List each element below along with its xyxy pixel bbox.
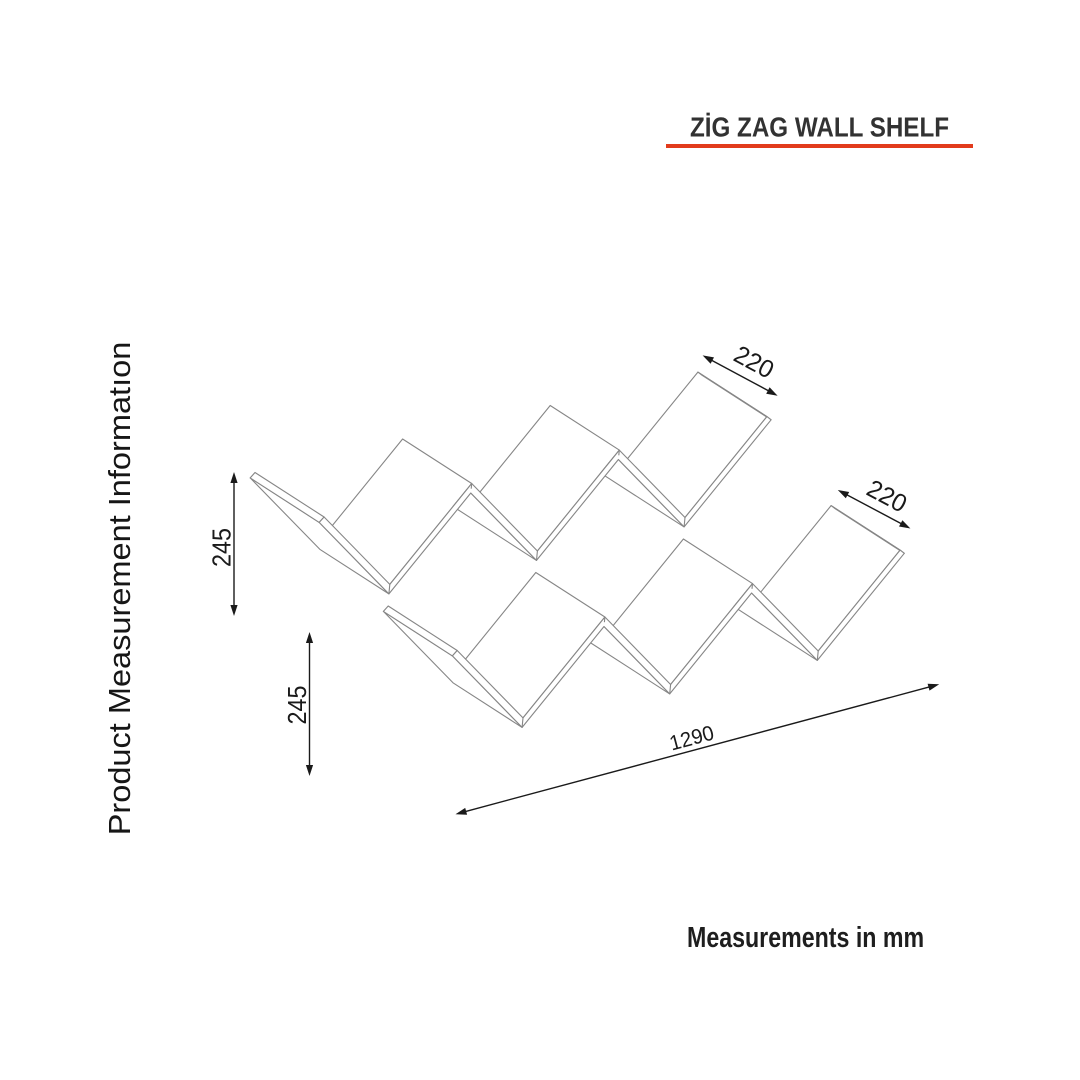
svg-text:245: 245 — [207, 528, 237, 567]
svg-text:Product Measurement Informatıo: Product Measurement Informatıon — [102, 342, 137, 836]
svg-text:220: 220 — [862, 474, 911, 518]
svg-text:1290: 1290 — [667, 722, 716, 756]
svg-text:245: 245 — [282, 686, 312, 725]
svg-text:Measurements in mm: Measurements in mm — [687, 920, 924, 953]
svg-text:ZİG ZAG WALL SHELF: ZİG ZAG WALL SHELF — [690, 111, 949, 143]
svg-text:220: 220 — [729, 340, 778, 384]
